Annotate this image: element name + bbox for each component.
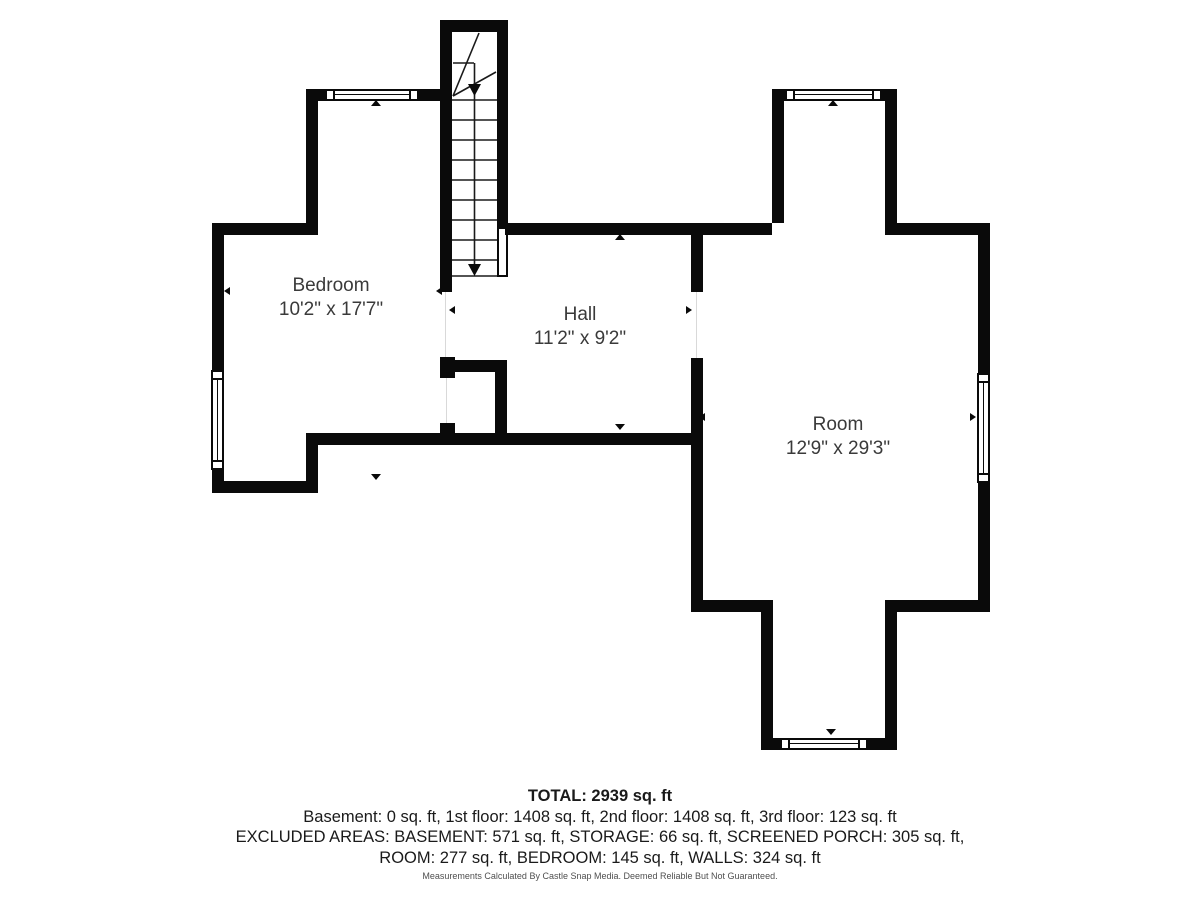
opening-marker-icon: [970, 413, 976, 421]
door-threshold: [696, 292, 697, 358]
wall: [897, 223, 990, 235]
excluded-areas-line1: EXCLUDED AREAS: BASEMENT: 571 sq. ft, ST…: [0, 827, 1200, 848]
door-threshold: [446, 378, 447, 423]
disclaimer: Measurements Calculated By Castle Snap M…: [0, 871, 1200, 881]
stair-down-arrow: [468, 84, 481, 96]
wall: [703, 223, 772, 235]
opening-marker-icon: [699, 413, 705, 421]
opening-marker-icon: [224, 287, 230, 295]
wall: [772, 89, 785, 101]
hall-dimensions: 11'2" x 9'2": [534, 327, 626, 351]
staircase: [452, 32, 497, 277]
opening-marker-icon: [615, 424, 625, 430]
wall: [306, 89, 325, 101]
room-label-hall: Hall 11'2" x 9'2": [534, 303, 626, 351]
wall: [897, 600, 990, 612]
opening-marker-icon: [436, 287, 442, 295]
hall-name: Hall: [534, 303, 626, 327]
wall: [978, 483, 990, 612]
area-summary: TOTAL: 2939 sq. ft Basement: 0 sq. ft, 1…: [0, 786, 1200, 868]
wall: [772, 89, 784, 223]
total-area: TOTAL: 2939 sq. ft: [0, 786, 1200, 807]
bedroom-name: Bedroom: [279, 274, 383, 298]
wall: [418, 89, 452, 101]
wall: [440, 20, 452, 292]
room-dimensions: 12'9" x 29'3": [786, 437, 890, 461]
opening-marker-icon: [615, 234, 625, 240]
opening-marker-icon: [828, 100, 838, 106]
room-name: Room: [786, 413, 890, 437]
window: [977, 373, 990, 483]
wall: [885, 600, 897, 750]
floor-areas: Basement: 0 sq. ft, 1st floor: 1408 sq. …: [0, 807, 1200, 828]
wall: [306, 89, 318, 223]
room-label-bedroom: Bedroom 10'2" x 17'7": [279, 274, 383, 322]
window: [780, 738, 868, 750]
bedroom-dimensions: 10'2" x 17'7": [279, 298, 383, 322]
wall: [885, 89, 897, 235]
door-threshold: [445, 292, 446, 358]
wall: [212, 481, 318, 493]
window: [211, 370, 224, 470]
floor-plan-canvas: Bedroom 10'2" x 17'7" Hall 11'2" x 9'2" …: [0, 0, 1200, 900]
wall: [440, 423, 455, 445]
wall: [761, 600, 773, 750]
wall: [761, 738, 780, 750]
wall: [212, 223, 224, 370]
wall: [497, 20, 508, 227]
stair-treads: [452, 33, 497, 276]
wall: [691, 358, 703, 612]
opening-marker-icon: [686, 306, 692, 314]
stair-down-arrow: [468, 264, 481, 276]
opening-marker-icon: [371, 474, 381, 480]
wall: [691, 235, 703, 292]
wall: [868, 738, 897, 750]
wall: [505, 223, 703, 235]
room-label-room: Room 12'9" x 29'3": [786, 413, 890, 461]
opening-marker-icon: [371, 100, 381, 106]
opening-marker-icon: [826, 729, 836, 735]
wall: [978, 223, 990, 373]
opening-marker-icon: [449, 306, 455, 314]
wall: [495, 360, 507, 445]
excluded-areas-line2: ROOM: 277 sq. ft, BEDROOM: 145 sq. ft, W…: [0, 848, 1200, 869]
wall: [212, 223, 318, 235]
